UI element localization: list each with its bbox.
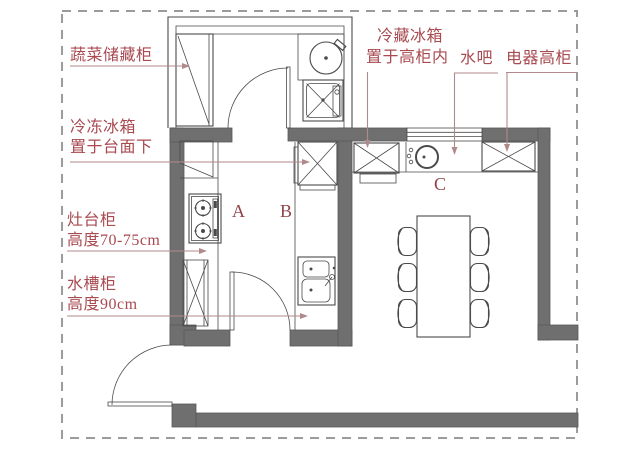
dashed-boundary	[62, 11, 577, 438]
freezer-under-counter-cabinet	[294, 142, 337, 190]
pantry-door	[228, 67, 290, 128]
label-water-bar: 水吧	[460, 49, 493, 68]
kitchen-counters	[218, 142, 295, 330]
dining-chair	[471, 300, 490, 328]
label-freezer-line1: 冷冻冰箱	[70, 118, 136, 137]
label-stove-cabinet-line2: 高度70-75cm	[67, 231, 160, 250]
vegetable-storage-cabinet	[176, 34, 213, 126]
wash-basin	[298, 34, 346, 80]
kitchen-sink	[298, 257, 335, 305]
water-bar-sink	[407, 146, 438, 168]
leader-freezer	[70, 159, 310, 165]
zone-c-label: C	[434, 174, 446, 195]
dining-chair	[471, 228, 490, 256]
kitchen-door	[230, 272, 290, 330]
label-fridge-line2: 置于高柜内	[366, 48, 449, 67]
dining-table	[417, 216, 470, 337]
zone-a-label: A	[232, 201, 245, 222]
cooktop	[189, 194, 221, 243]
leader-water-bar	[452, 73, 499, 155]
label-vegetable-storage: 蔬菜储藏柜	[70, 46, 153, 65]
label-stove-cabinet-line1: 灶台柜	[67, 211, 117, 230]
window	[407, 128, 482, 141]
dining-chairs	[398, 228, 489, 328]
kitchen-floor-plan: 蔬菜储藏柜 冷冻冰箱 置于台面下 灶台柜 高度70-75cm 水槽柜 高度90c…	[0, 0, 640, 452]
shower-tray	[303, 80, 343, 121]
label-fridge-line1: 冷藏冰箱	[377, 27, 443, 46]
label-sink-cabinet-line1: 水槽柜	[67, 275, 117, 294]
dining-chair	[471, 264, 490, 292]
dining-chair	[398, 264, 417, 292]
dining-chair	[398, 228, 417, 256]
label-sink-cabinet-line2: 高度90cm	[67, 295, 138, 314]
fridge-tall-cabinet	[354, 143, 399, 183]
entrance-door	[108, 345, 172, 406]
corner-cabinet	[180, 141, 218, 178]
label-appliance-cabinet: 电器高柜	[506, 49, 572, 68]
dining-chair	[398, 300, 417, 328]
label-freezer-line2: 置于台面下	[70, 138, 153, 157]
zone-b-label: B	[280, 201, 292, 222]
